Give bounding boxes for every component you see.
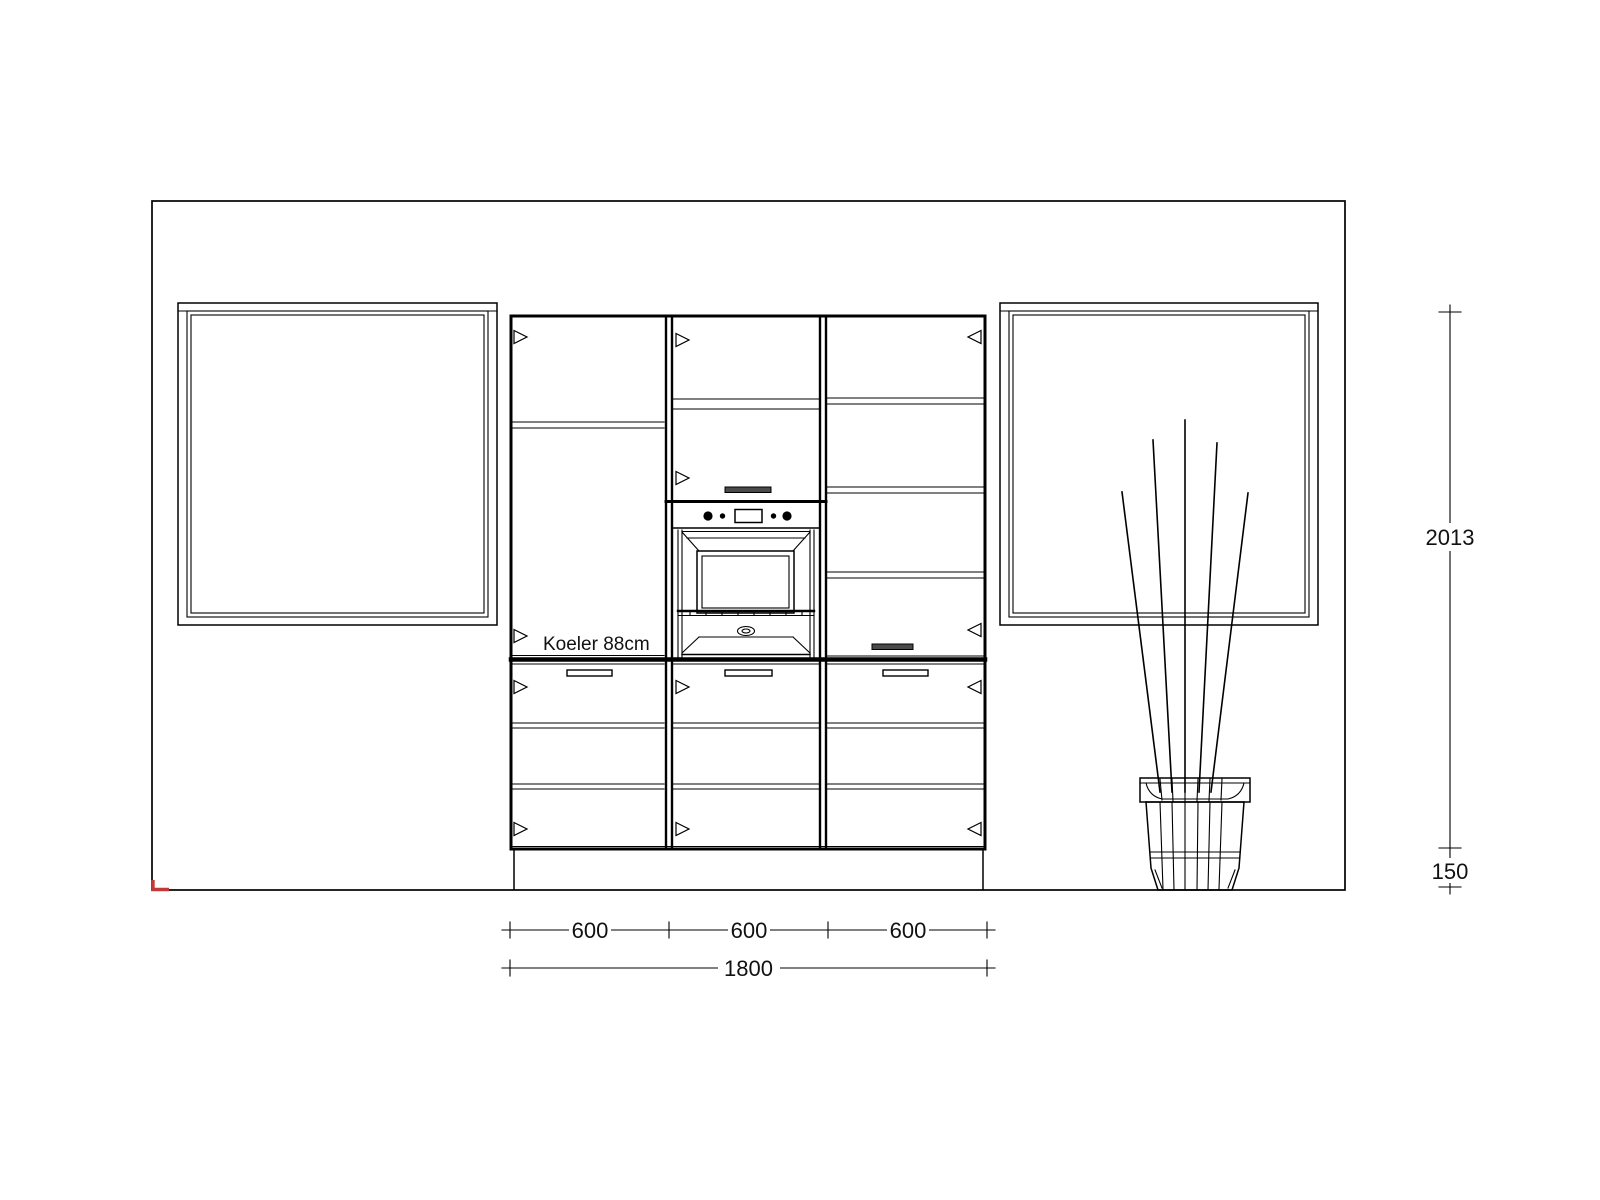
hinge-arrow-icon	[676, 681, 689, 694]
hinge-arrow-icon	[514, 630, 527, 643]
dim-600-2: 600	[731, 918, 768, 943]
wall-outline	[152, 201, 1345, 890]
hinge-arrow-icon	[514, 823, 527, 836]
right-window	[1000, 303, 1318, 625]
oven	[673, 510, 819, 659]
drawer-handle	[567, 670, 612, 676]
column-fridge	[513, 331, 664, 656]
hinge-arrow-icon	[968, 681, 981, 694]
left-window	[178, 303, 497, 625]
oven-control-panel	[673, 510, 819, 529]
door-handle	[725, 487, 771, 493]
dimension-right-vertical: 2013 150	[1420, 305, 1480, 894]
oven-display	[735, 510, 762, 523]
dim-150: 150	[1432, 859, 1469, 884]
plant-pot	[1140, 778, 1250, 890]
base-cabinets	[513, 664, 983, 836]
fridge-label: Koeler 88cm	[543, 634, 650, 655]
plant-stems	[1122, 420, 1248, 792]
drawer-handle	[725, 670, 772, 676]
hinge-arrow-icon	[676, 823, 689, 836]
oven-logo	[738, 627, 755, 636]
origin-marker	[153, 880, 169, 890]
dim-600-3: 600	[890, 918, 927, 943]
hinge-arrow-icon	[968, 331, 981, 344]
column-oven	[666, 334, 826, 659]
oven-knob	[703, 511, 712, 520]
cabinet-block	[511, 316, 985, 889]
dim-600-1: 600	[572, 918, 609, 943]
dim-1800: 1800	[724, 956, 773, 981]
drawer-handle	[883, 670, 928, 676]
hinge-arrow-icon	[676, 472, 689, 485]
oven-knob	[720, 513, 725, 518]
dimension-bottom-segments: 600 600 600	[502, 916, 995, 943]
kitchen-elevation-drawing: Koeler 88cm	[0, 0, 1600, 1200]
hinge-arrow-icon	[968, 624, 981, 637]
hinge-arrow-icon	[514, 681, 527, 694]
oven-door	[678, 530, 814, 658]
column-shelves	[827, 331, 983, 657]
hinge-arrow-icon	[968, 823, 981, 836]
oven-knob	[782, 511, 791, 520]
dim-2013: 2013	[1426, 525, 1475, 550]
oven-knob	[771, 513, 776, 518]
plant	[1122, 420, 1250, 890]
door-handle	[872, 644, 913, 650]
cabinet-outline	[511, 316, 985, 849]
dimension-bottom-total: 1800	[502, 954, 995, 981]
hinge-arrow-icon	[676, 334, 689, 347]
hinge-arrow-icon	[514, 331, 527, 344]
